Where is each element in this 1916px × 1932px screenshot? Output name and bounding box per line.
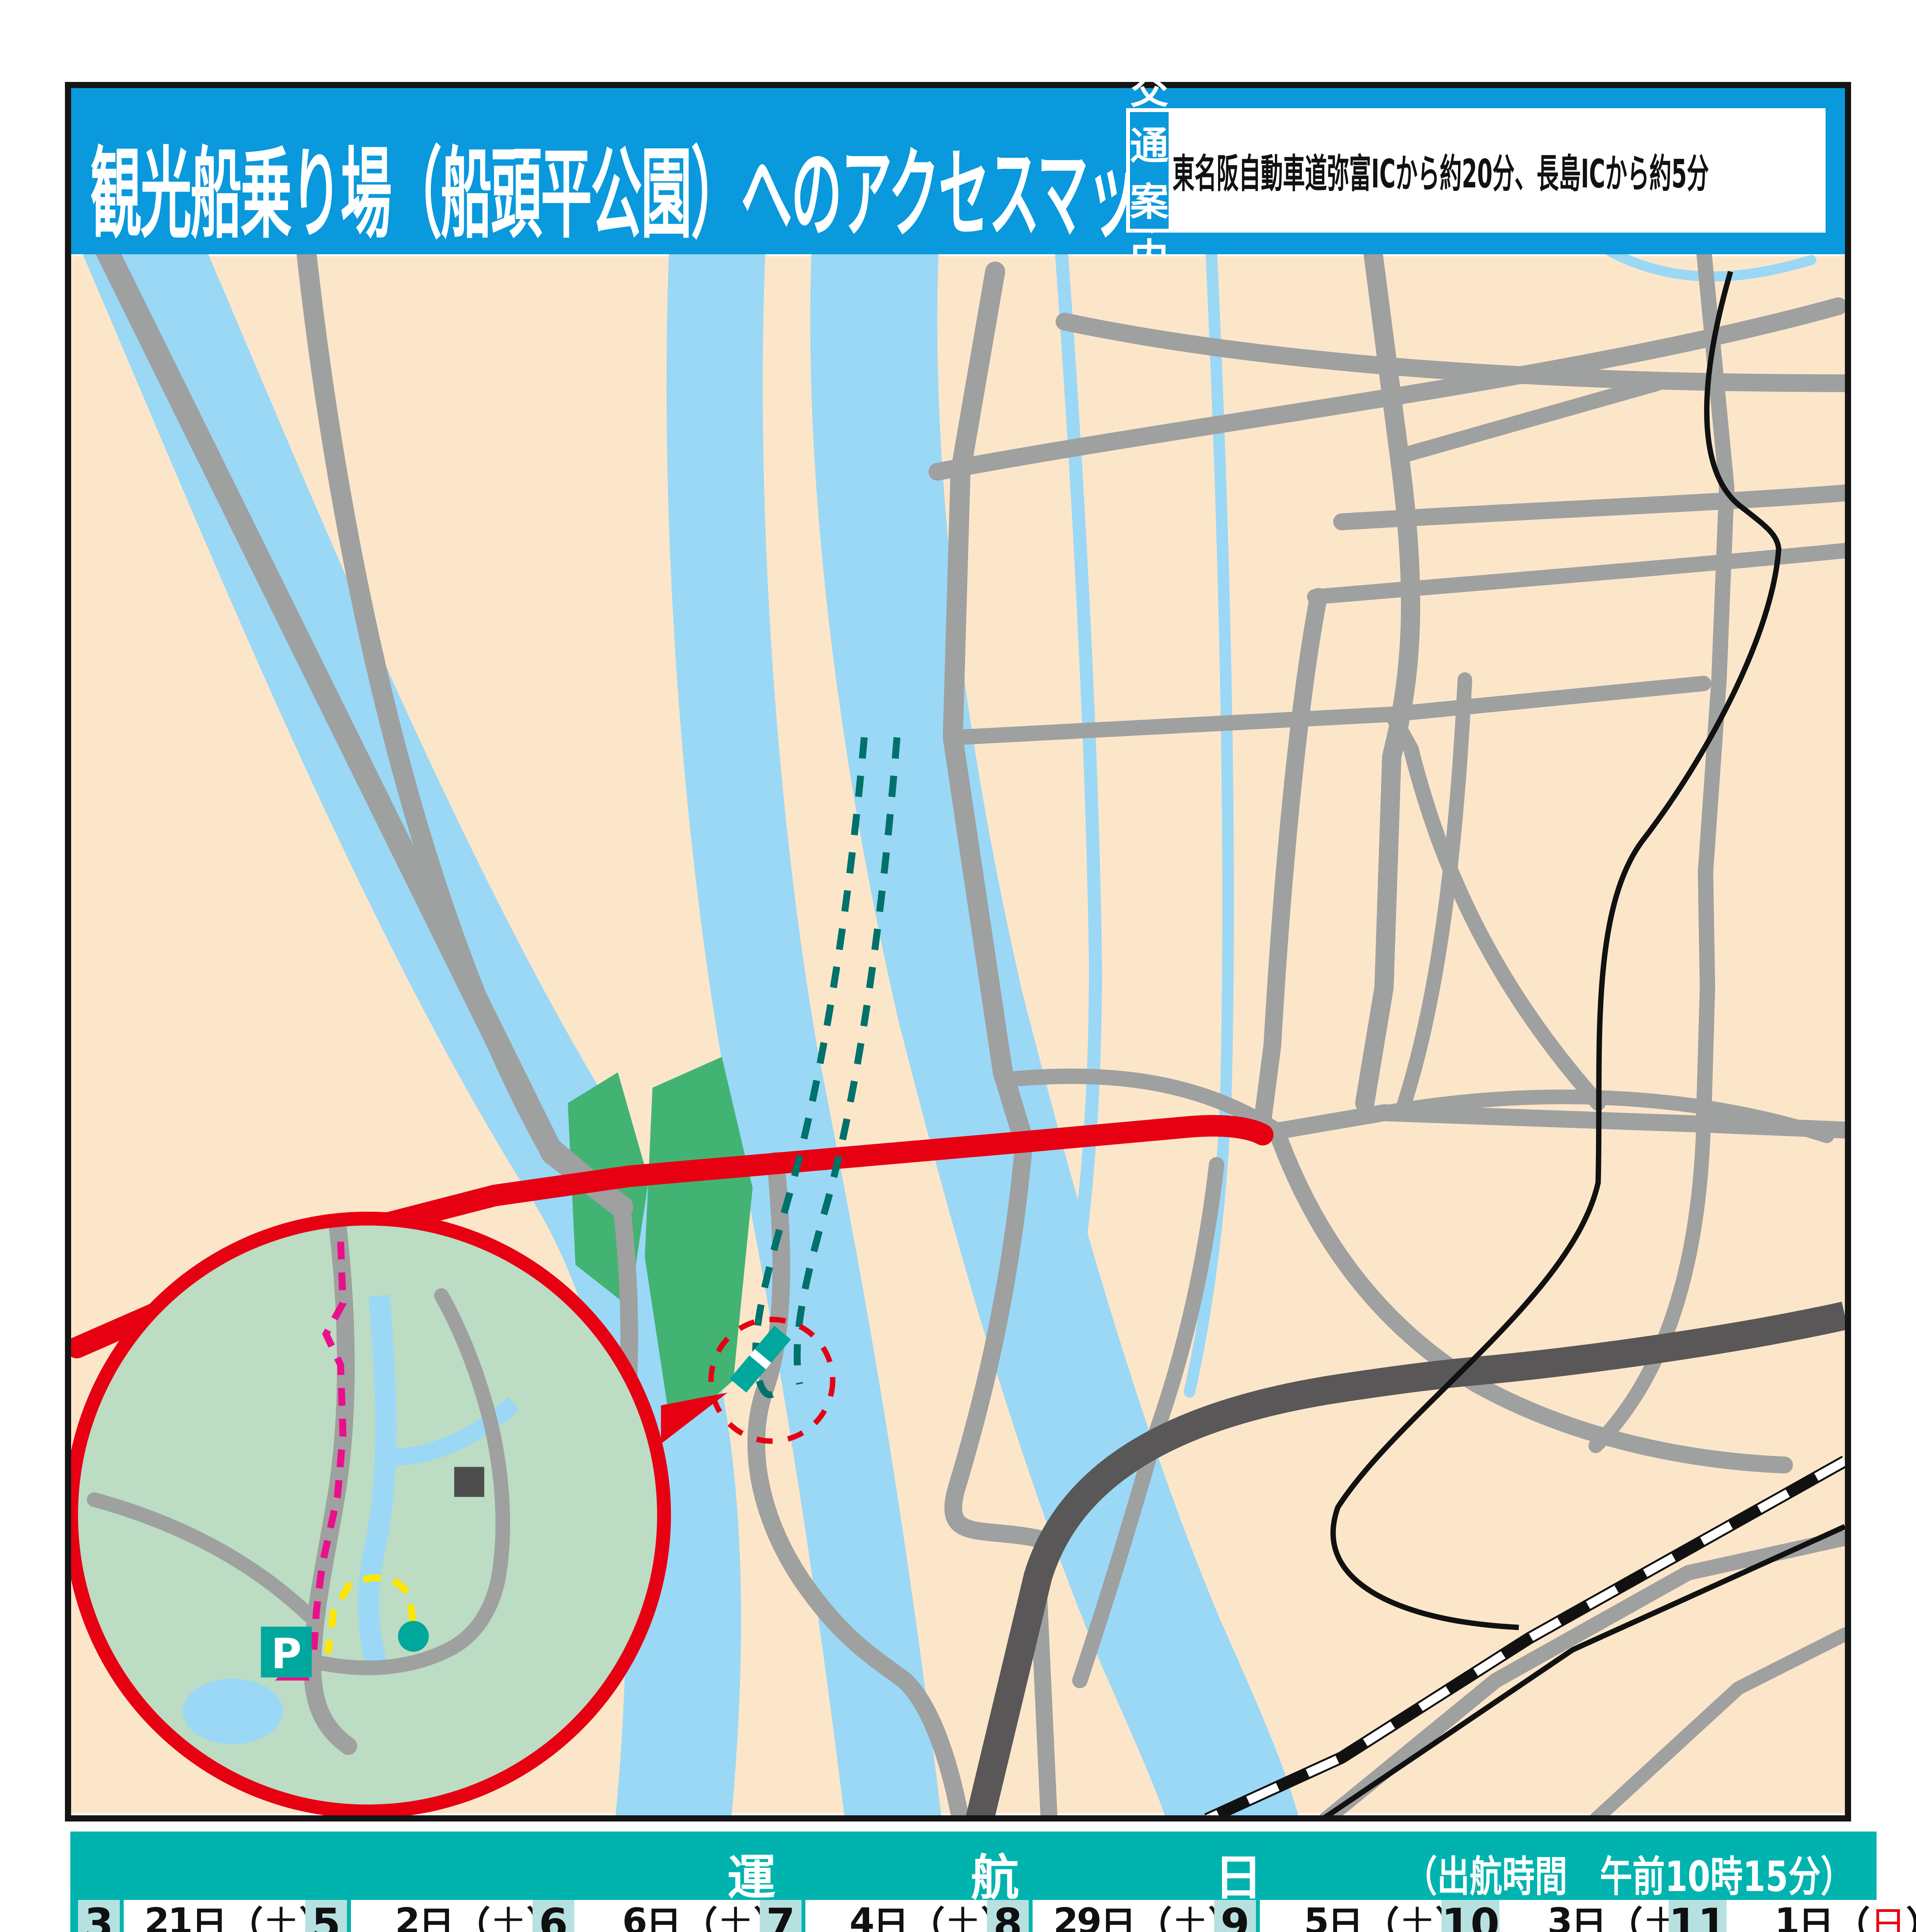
- month-label: 11月: [1669, 1900, 1727, 1932]
- calendar-month-section: 5月2日（土）3日（祝・日）4日（祝・月）5日（祝・火）6日（休・水）9日（土）…: [305, 1900, 522, 1932]
- title-bar: 観光船乗り場（船頭平公園）へのアクセスマップ 交通案内 東名阪自動車道弥富ICか…: [71, 88, 1845, 254]
- traffic-info-badge: 交通案内 東名阪自動車道弥富ICから約20分、長島ICから約5分: [1126, 108, 1826, 233]
- sailing-date-cell: 29日（土）: [1033, 1900, 1244, 1932]
- calendar-column: 8月29日（土）30日（日）: [987, 1900, 1203, 1932]
- sailing-calendar: 運 航 日 （出航時間 午前10時15分） 3月21日（土）22日（日）28日（…: [70, 1832, 1877, 1932]
- access-map-svg: P: [71, 254, 1845, 1815]
- traffic-info-label: 交通案内: [1126, 108, 1172, 233]
- month-label: 10月: [1441, 1900, 1499, 1932]
- calendar-month-section: 3月21日（土）22日（日）28日（土）29日（日）: [78, 1900, 294, 1932]
- departure-time-note: （出航時間 午前10時15分）: [1405, 1843, 1853, 1903]
- calendar-column: 6月6日（土）7日（日）13日（土）14日（日）20日（土）21日（日）27日（…: [533, 1900, 749, 1932]
- sailing-date-cell: 21日（土）: [124, 1900, 335, 1932]
- calendar-month-section: 6月6日（土）7日（日）13日（土）14日（日）20日（土）21日（日）27日（…: [533, 1900, 749, 1932]
- calendar-header: 運 航 日 （出航時間 午前10時15分）: [70, 1832, 1877, 1895]
- month-label: 6月: [533, 1900, 574, 1932]
- calendar-column: 5月2日（土）3日（祝・日）4日（祝・月）5日（祝・火）6日（休・水）9日（土）…: [305, 1900, 522, 1932]
- calendar-month-section: 11月1日（日）3日（祝・火）7日（土）8日（日）: [1669, 1900, 1885, 1932]
- calendar-column: 9月5日（土）6日（日）12日（土）13日（日）19日（土）20日（日）21日（…: [1214, 1900, 1431, 1932]
- parking-label: P: [271, 1630, 302, 1678]
- calendar-month-section: 8月29日（土）30日（日）: [987, 1900, 1203, 1932]
- access-map-poster: 観光船乗り場（船頭平公園）へのアクセスマップ 交通案内 東名阪自動車道弥富ICか…: [0, 0, 1916, 1932]
- map-frame: 観光船乗り場（船頭平公園）へのアクセスマップ 交通案内 東名阪自動車道弥富ICか…: [65, 82, 1851, 1821]
- calendar-month-section: 9月5日（土）6日（日）12日（土）13日（日）19日（土）20日（日）21日（…: [1214, 1900, 1431, 1932]
- month-label: 7月: [760, 1900, 801, 1932]
- sailing-date-cell: 1日（日）: [1731, 1900, 1916, 1932]
- calendar-column: 7月4日（土）5日（日）11日（土）12日（日）: [760, 1900, 976, 1932]
- calendar-column: 10月3日（土）4日（日）10日（土）11日（日）12日（祝・月）17日（土）1…: [1441, 1900, 1658, 1932]
- calendar-month-section: 7月4日（土）5日（日）11日（土）12日（日）: [760, 1900, 976, 1932]
- sailing-date-cell: 4日（土）: [805, 1900, 1017, 1932]
- month-label: 3月: [78, 1900, 120, 1932]
- month-label: 8月: [987, 1900, 1029, 1932]
- boarding-point-dot: [398, 1621, 429, 1652]
- page-title: 観光船乗り場（船頭平公園）へのアクセスマップ: [90, 114, 1187, 257]
- map-area: P: [71, 254, 1845, 1815]
- inset-pond: [183, 1679, 283, 1744]
- month-label: 9月: [1214, 1900, 1256, 1932]
- month-label: 5月: [305, 1900, 347, 1932]
- traffic-info-text: 東名阪自動車道弥富ICから約20分、長島ICから約5分: [1172, 108, 1916, 233]
- calendar-month-section: 10月3日（土）4日（日）10日（土）11日（日）12日（祝・月）17日（土）1…: [1441, 1900, 1658, 1932]
- kisogawa-bunko-marker: [454, 1467, 484, 1497]
- calendar-column: 11月1日（日）3日（祝・火）7日（土）8日（日）: [1669, 1900, 1885, 1932]
- sailing-date-cell: 6日（土）: [578, 1900, 790, 1932]
- calendar-column: 3月21日（土）22日（日）28日（土）29日（日）4月4日（土）5日（日）11…: [78, 1900, 294, 1932]
